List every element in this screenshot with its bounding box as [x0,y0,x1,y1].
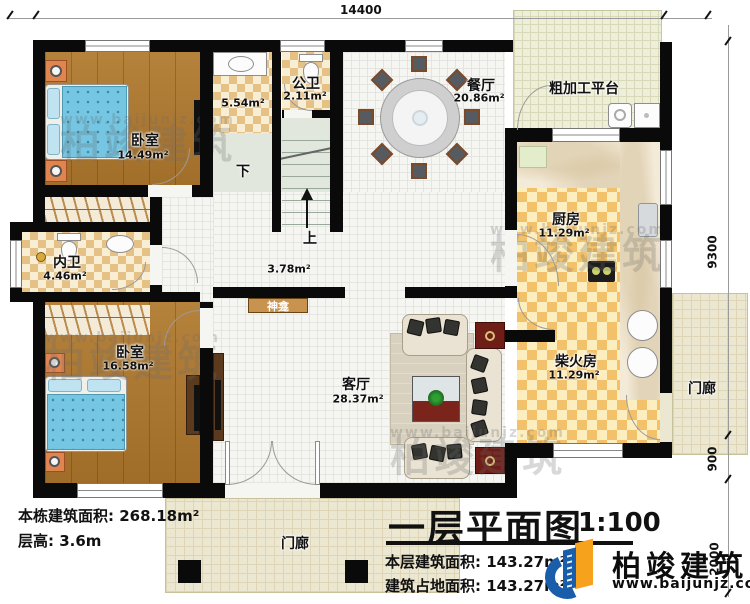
dining-area: 20.86m² [453,92,504,105]
porch-column [345,560,368,583]
sofa-cushion [425,317,442,334]
stove-burner [603,267,611,275]
bed-blanket [62,86,127,158]
dim-line-right [728,25,729,597]
lamp-icon [49,357,60,368]
wall-step [505,443,517,498]
dim-right-900: 900 [706,446,720,471]
dining-chair [411,163,427,179]
firewood-area: 11.29m² [548,369,599,382]
kitchen-sink [638,203,658,237]
window [77,483,163,498]
wall-wc-bottom [10,292,200,302]
door-opening [200,308,213,348]
kitchen-area: 11.29m² [538,227,589,240]
plan-scale: 1:100 [578,508,661,538]
brand-logo-icon [545,541,607,599]
door-opening [148,185,192,197]
sink-basin [106,235,134,253]
sofa-cushion [471,377,489,395]
tv-living [215,380,221,430]
porch-bottom-label: 门廊 [281,533,309,553]
window [552,128,620,142]
window [660,240,672,288]
footprint-area-note: 建筑占地面积: 143.27m² [385,575,566,596]
washing-machine-door [614,109,626,121]
sofa-cushion [443,319,460,336]
stair-arrow-head [301,182,313,200]
dining-chair [411,56,427,72]
lamp-icon [49,456,60,467]
entry-door-leaf [225,441,230,485]
bedroom1-label: 卧室 [131,130,159,150]
dining-table-center [412,110,428,126]
door-opening [150,245,162,285]
living-label: 客厅 [342,374,370,394]
floor-area-note: 本层建筑面积: 143.27m² [385,551,566,572]
wardrobe [45,197,150,222]
hallway-area: 3.78m² [267,263,310,276]
entry-door-leaf [315,441,320,485]
bed-blanket [47,394,125,450]
sofa-cushion [471,399,488,416]
stair-down-label: 下 [236,161,250,181]
round-stove [627,310,658,341]
pillow [47,124,60,155]
inner-wc-area: 4.46m² [43,270,86,283]
note-floor-height: 层高: 3.6m [18,530,101,551]
brand-url: www.baijunjz.com [612,576,750,592]
door-opening [505,230,517,286]
door-opening [284,110,312,118]
side-table-star [485,331,495,341]
laundry-sink-drain [644,113,649,118]
shrine-table: 神龛 [248,298,308,313]
stair-up-label: 上 [303,228,317,248]
door-opening [660,393,672,442]
wall-bedroom1-right [200,40,213,197]
wall-left-lower [33,302,45,498]
porch-right-floor [672,293,748,455]
wall-dining-living [405,287,517,298]
window [660,150,672,205]
logo-building-blue [563,547,576,590]
pillow [87,379,121,392]
platform-label: 粗加工平台 [549,78,619,98]
sofa-cushion [446,443,462,459]
wall-shrine [213,287,345,298]
toilet-tank [57,233,81,241]
porch-right-label: 门廊 [688,378,716,398]
pillow [48,379,82,392]
stove-burner [592,267,600,275]
pillow [47,88,60,119]
dim-top-value: 14400 [340,3,382,17]
window [405,40,443,52]
bedroom2-area: 16.58m² [102,360,153,373]
wardrobe [45,305,150,335]
toilet-tank [299,54,323,62]
dim-line-top [8,18,712,19]
dim-right-9300: 9300 [706,235,720,268]
note-building-area: 本栋建筑面积: 268.18m² [18,505,199,526]
lamp-icon [50,65,62,77]
floor-plan: 神龛 柏竣建筑 www.baijunjz.com 柏竣建筑 www.baijun… [0,0,750,604]
logo-building-orange [575,539,593,589]
round-stove [627,347,658,378]
wall-stair-right [330,52,343,232]
window [280,40,325,52]
porch-column [178,560,201,583]
sofa-cushion [429,445,447,463]
sofa-cushion [411,443,428,460]
living-area: 28.37m² [332,393,383,406]
public-wc-area: 2.11m² [283,90,326,103]
window [553,443,623,458]
window [10,240,22,288]
wall-wc-top [10,222,162,232]
side-table-star [485,456,495,466]
dining-chair [358,109,374,125]
wall-stair-left [272,52,281,232]
cutting-board [519,146,547,168]
lamp-icon [50,165,62,177]
dining-chair [464,109,480,125]
window [85,40,150,52]
sink-basin [228,56,254,72]
bath-area: 5.54m² [221,97,264,110]
bedroom1-area: 14.49m² [117,149,168,162]
pendant-light [36,252,46,262]
entry-opening [225,483,320,498]
wall-kitchen-firewood [505,330,555,342]
